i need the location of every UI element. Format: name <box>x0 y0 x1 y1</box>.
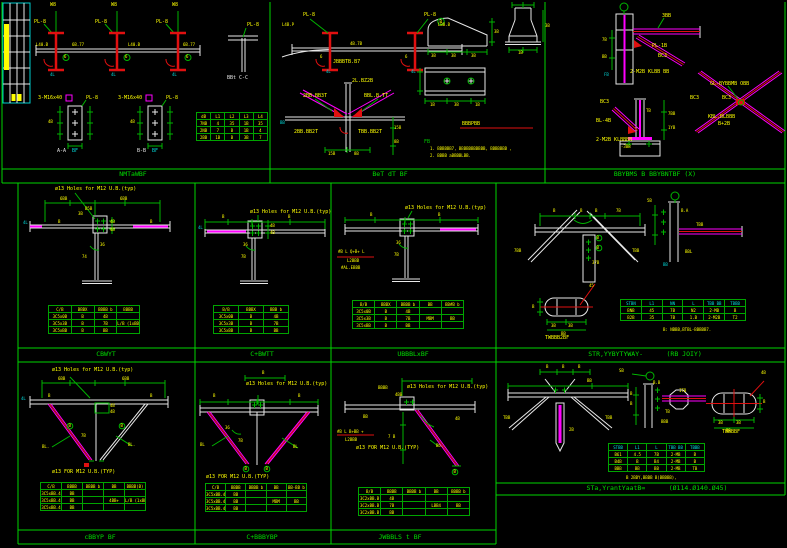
panel-title-b2: C+BBBYBP <box>246 534 277 541</box>
dim-label: 2B <box>569 428 574 432</box>
weld-mark: B <box>266 467 268 471</box>
plate-label: PL-8 <box>247 23 259 28</box>
aux-mark: 4L <box>411 70 416 74</box>
weld-mark: B <box>69 424 71 428</box>
dim-label: B5B <box>85 207 92 211</box>
panel-title-m3: UBBBLxBF <box>397 351 428 358</box>
dim-label: B <box>438 213 440 217</box>
dim-label: 3B <box>451 54 456 58</box>
m1-schedule-table: C/BBBBXBBBB bBBBB3C5x0BB4B3C5x3BB7BL/B (… <box>48 305 140 334</box>
aux-mark: 4L <box>326 70 331 74</box>
dim-label: 7B <box>238 439 243 443</box>
dim-label: B <box>262 371 264 375</box>
dim-label: 3B <box>568 324 573 328</box>
panel-title-b1: cBBYP BF <box>84 534 115 541</box>
section-title: B-B <box>137 149 146 154</box>
m2-schedule-table: B/BBBBXBBB b3C5x0BB4B3C5x3BB7B3C5xBBBBB <box>213 305 289 334</box>
dim-label: B <box>553 209 555 213</box>
dim-label: B <box>763 400 765 404</box>
holes-note: ø13 Holes for M12 U.B.(typ) <box>246 382 327 387</box>
dim-label: 74 <box>82 255 87 259</box>
member-label: Bb. <box>436 444 443 448</box>
weld-mark: B <box>597 236 599 240</box>
member-label: BC3 <box>722 96 731 101</box>
dim-label: B <box>150 394 152 398</box>
panel-title-m4: STR,YYBYTYWAY- (RB JOIY) <box>588 351 702 358</box>
note-line: 2. BBBB aBBBBLBB. <box>430 154 471 158</box>
dim-label: 7B <box>616 209 621 213</box>
dim-label: 15B <box>394 126 401 130</box>
panel-t3-geometry <box>609 3 785 156</box>
bolt-label: 2-M2B KLBB BB <box>630 70 669 75</box>
weld-mark: B <box>245 467 247 471</box>
member-label: L2BBB <box>345 438 357 442</box>
detail-label: TBBBBF <box>722 430 740 435</box>
dim-label: B <box>630 402 632 406</box>
dim-label: B <box>48 394 50 398</box>
panel-title-b4: STa,YrantYaatB= (Ø114.Ø140.Ø45) <box>587 485 728 492</box>
plate-label: PL-8 <box>95 20 107 25</box>
dim-label: B <box>370 213 372 217</box>
member-label: 6B.77 <box>72 43 84 47</box>
member-label: #B L Q+B+ L <box>338 250 365 254</box>
member-label: TBB <box>605 416 612 420</box>
aux-mark: 4L <box>21 397 26 401</box>
member-label: BL <box>200 443 205 447</box>
level-mark: -3BB <box>621 145 631 149</box>
weld-mark: 6 <box>320 55 322 59</box>
plate-label: PL-8 <box>166 96 178 101</box>
dim-label: B <box>222 215 224 219</box>
dim-label: 6BB <box>60 197 67 201</box>
weld-mark: B <box>454 470 456 474</box>
dim-label: BBBB <box>378 386 388 390</box>
plate-label: PL-8 <box>86 96 98 101</box>
dim-label: 4B <box>110 404 115 408</box>
plate-label: PL-8 <box>424 13 436 18</box>
holes-note: ø13 Holes for M12 U.B.(typ) <box>405 206 486 211</box>
member-label: TBB.BB2T <box>358 130 382 135</box>
b3-schedule-table: B/BBBBBBBBB bBBBBBB b3C2xBB.B4B3C2xBB.B7… <box>358 487 470 516</box>
member-label: L40.B <box>36 43 48 47</box>
dim-label: 1B <box>475 103 480 107</box>
aux-mark: 4L <box>198 226 203 230</box>
detail-label: TWBBB2BF <box>545 336 569 341</box>
dim-label: 4B <box>270 231 275 235</box>
dim-label: B.B <box>653 381 660 385</box>
dim-label: B <box>532 305 534 309</box>
panel-title-m2: C+BWTT <box>250 351 273 358</box>
plate-label: PL-8 <box>34 20 46 25</box>
dim-label: 15B <box>328 152 335 156</box>
member-label: BBL <box>685 250 692 254</box>
panel-title-m1: CBWYT <box>96 351 116 358</box>
dim-label: 8B <box>354 152 359 156</box>
dim-label: B.A <box>681 209 688 213</box>
angle-mark: 4B <box>761 371 766 375</box>
member-label: BBB <box>661 420 668 424</box>
angle-mark: 4B <box>455 417 460 421</box>
dim-label: 4BB <box>395 393 402 397</box>
holes-note: ø13 FOR M12 U.B.(TYP) <box>52 470 115 475</box>
aux-mark: 4L <box>172 73 177 77</box>
dim-label: 4B <box>270 224 275 228</box>
dim-label: TB <box>646 109 651 113</box>
dim-label: B <box>298 394 300 398</box>
member-label: 2BB.BB2T <box>294 130 318 135</box>
dim-label: 4B <box>48 120 53 124</box>
dim-label: 7B <box>81 434 86 438</box>
grid-mark: W8 <box>111 3 117 8</box>
member-label: L2BBB <box>347 259 359 263</box>
dim-label: 36 <box>225 426 230 430</box>
member-label: BBL.B.TT <box>364 94 388 99</box>
holes-note: ø13 Holes for M12 U.B.(typ) <box>55 187 136 192</box>
member-label: 2L.BZ2B <box>352 79 373 84</box>
dim-label: 4B.7B <box>350 42 362 46</box>
panel-b1-geometry <box>30 377 168 467</box>
member-label: BC3 <box>658 54 667 59</box>
panel-m1-geometry <box>30 193 170 284</box>
plate-label: PL-1B <box>652 44 667 49</box>
section-label: BBt C-C <box>227 76 248 81</box>
holes-note: ø13 FOR M12 U.B.(TYP) <box>356 446 419 451</box>
holes-note: ø13 Holes for M12 U.B.(typ) <box>250 210 331 215</box>
member-label: BL. <box>128 443 135 447</box>
member-label: L40.B <box>128 43 140 47</box>
grid-mark: SB <box>619 369 624 373</box>
sub-label: JBBBTB.B7 <box>333 60 360 65</box>
holes-note: ø13 Holes for M12 U.B.(typ) <box>407 385 488 390</box>
panel-b2-geometry <box>200 375 318 472</box>
dim-label: 8B <box>394 140 399 144</box>
member-label: #B L B+BB + <box>337 430 364 434</box>
panel-title-b3: JWBBLS t BF <box>378 534 421 541</box>
weld-mark: 6 <box>186 55 188 59</box>
dim-label: TB <box>665 410 670 414</box>
dim-label: 7B <box>241 255 246 259</box>
member-label: BL. <box>42 445 49 449</box>
member-label: BC3 <box>600 100 609 105</box>
dim-label: B <box>150 220 152 224</box>
dim-label: B <box>562 365 564 369</box>
section-suffix: BF <box>152 149 158 154</box>
grid-mark: W8 <box>172 3 178 8</box>
grid-mark: 5B <box>647 199 652 203</box>
dim-label: 3B <box>494 30 499 34</box>
dim-label: B <box>288 215 290 219</box>
weld-mark: B <box>597 246 599 250</box>
aux-mark: 4L <box>50 73 55 77</box>
m3-schedule-table: B/BBBBXBBBB bBBBB#B b3C5x0BB4B3C5x3BB7BM… <box>352 300 464 329</box>
dim-label: 3B <box>718 421 723 425</box>
bolt-label: KBL.BLBBB <box>708 115 735 120</box>
dim-label: BB <box>587 379 592 383</box>
aux-mark: BB <box>280 121 285 125</box>
dim-label: 6BB <box>120 197 127 201</box>
holes-note: ø13 FOR M12 U.B.(TYP) <box>206 475 269 480</box>
bolt-label: 2-M2B KLBBBB <box>596 138 632 143</box>
note-line: B 2BBY,BBBB B(BBBBB), <box>626 476 677 480</box>
plate-label: PL-8 <box>303 13 315 18</box>
dim-label: 6BB <box>122 377 129 381</box>
dim-label: B <box>213 394 215 398</box>
member-label: LBB.B <box>438 23 450 27</box>
dim-label: BB <box>602 55 607 59</box>
member-label: L4B.P <box>282 23 294 27</box>
dim-label: BB <box>363 415 368 419</box>
dim-label: 36 <box>100 243 105 247</box>
panel-m2-geometry <box>205 215 325 284</box>
slope-mark: 37B <box>592 261 599 265</box>
dim-label: B <box>630 392 632 396</box>
dim-label: 1B <box>430 103 435 107</box>
panel-title-t1: NMTaWBF <box>119 171 146 178</box>
cad-drawing-sheet: W8 W8 W8 PL-8 PL-8 PL-8 L40.B 6B.77 L40.… <box>0 0 787 548</box>
member-label: BL <box>293 445 298 449</box>
dim-label: 3B <box>736 421 741 425</box>
b4-schedule-table: STBBL1LTBB BBTBBBB614.57B2-MBBB4BBB42-MB… <box>608 443 705 472</box>
member-label: TBB <box>696 223 703 227</box>
dim-label: 3B <box>471 54 476 58</box>
bolt-label: 3-M16x40 <box>118 96 142 101</box>
dim-label: 36 <box>396 241 401 245</box>
member-label: 7BB <box>514 249 521 253</box>
notes-header: FB <box>424 140 430 145</box>
member-label: ITB <box>679 389 686 393</box>
dim-label: B <box>58 220 60 224</box>
weld-mark: B <box>440 20 442 24</box>
dim-label: B <box>578 365 580 369</box>
dim-label: B <box>546 365 548 369</box>
aux-mark: 4L <box>23 221 28 225</box>
grid-mark: W8 <box>50 3 56 8</box>
dim-label: 4B <box>110 410 115 414</box>
angle-mark: 45 <box>589 284 594 288</box>
bolt-label: B+2B <box>718 122 730 127</box>
dim-label: 36 <box>243 243 248 247</box>
dim-label: 3B <box>545 24 550 28</box>
dim-label: 3B <box>551 324 556 328</box>
dim-label: 3B <box>78 212 83 216</box>
plate-label: BL-4B <box>596 119 611 124</box>
aux-mark: 4L <box>111 73 116 77</box>
member-label: #AL.EBBB <box>341 266 360 270</box>
struck-label: BBBPBB <box>462 122 480 127</box>
aux-mark: BB <box>663 263 668 267</box>
plate-label: PL-8 <box>156 20 168 25</box>
member-label: TBB <box>632 249 639 253</box>
panel-b3-geometry <box>337 378 475 475</box>
b2-schedule-table: C/BBBBBBBBB bBBBB-BB b3C5xBB.4BB3C5xBB.4… <box>205 483 307 512</box>
dim-label: 1YB <box>668 126 675 130</box>
member-label: 2BB.BB3T <box>303 94 327 99</box>
dim-label: 7 B <box>388 435 395 439</box>
member-label: BC3 <box>690 96 699 101</box>
dim-label: 4B <box>110 220 115 224</box>
bolt-label: 3-M16x40 <box>38 96 62 101</box>
panel-b4-geometry <box>508 369 764 451</box>
aux-mark: FB <box>604 73 609 77</box>
dim-label: 3B <box>431 54 436 58</box>
panel-title-t2: BeT dT BF <box>372 171 407 178</box>
member-label: GL-BYBBMB OBB <box>710 82 749 87</box>
dim-label: 3B <box>454 103 459 107</box>
panel-title-t3: BBYBMS B BBYBNTBF (X) <box>614 171 696 178</box>
dim-label: 7BB <box>668 112 675 116</box>
dim-label: 7B <box>394 253 399 257</box>
m4-schedule-table: STBNL1NNLTBB BBTBBBBNB457BN22-MBBB2B357B… <box>620 299 746 321</box>
t1-schedule-table: dBL1L2L3L47NB4351B352NB7B1B42BB1BB3B7 <box>196 112 268 141</box>
weld-mark: 6 <box>64 55 66 59</box>
dim-label: B <box>595 209 597 213</box>
weld-mark: 6 <box>405 55 407 59</box>
section-title: A-A <box>57 149 66 154</box>
note-line: B: NBBB,BTBL-BBBBB7. <box>663 328 711 332</box>
dim-label: 6BB <box>58 377 65 381</box>
weld-mark: B <box>121 424 123 428</box>
frame-title-strip <box>3 3 30 103</box>
holes-note: ø13 Holes for M12 U.B.(typ) <box>52 368 133 373</box>
panel-m3-geometry <box>337 211 478 282</box>
member-label: 6B.77 <box>183 43 195 47</box>
panel-t2-geometry <box>282 2 543 155</box>
dim-label: 4B <box>130 120 135 124</box>
dim-label: 4B <box>110 228 115 232</box>
member-label: TBB <box>503 416 510 420</box>
dim-label: 7B <box>602 38 607 42</box>
note-line: 1. BBBBBB7, BBBBBBBBBBB, BBBBBBB , <box>430 147 512 151</box>
b1-schedule-table: C/BBBBBBBBB bBBBBBB(B)3C5xBB.4BB3C5xBB.4… <box>40 482 146 511</box>
dim-label: B <box>580 209 582 213</box>
dim-label: 3BB <box>662 14 671 19</box>
dim-label: 1B <box>518 51 523 55</box>
weld-mark: 6 <box>125 55 127 59</box>
section-suffix: BF <box>72 149 78 154</box>
